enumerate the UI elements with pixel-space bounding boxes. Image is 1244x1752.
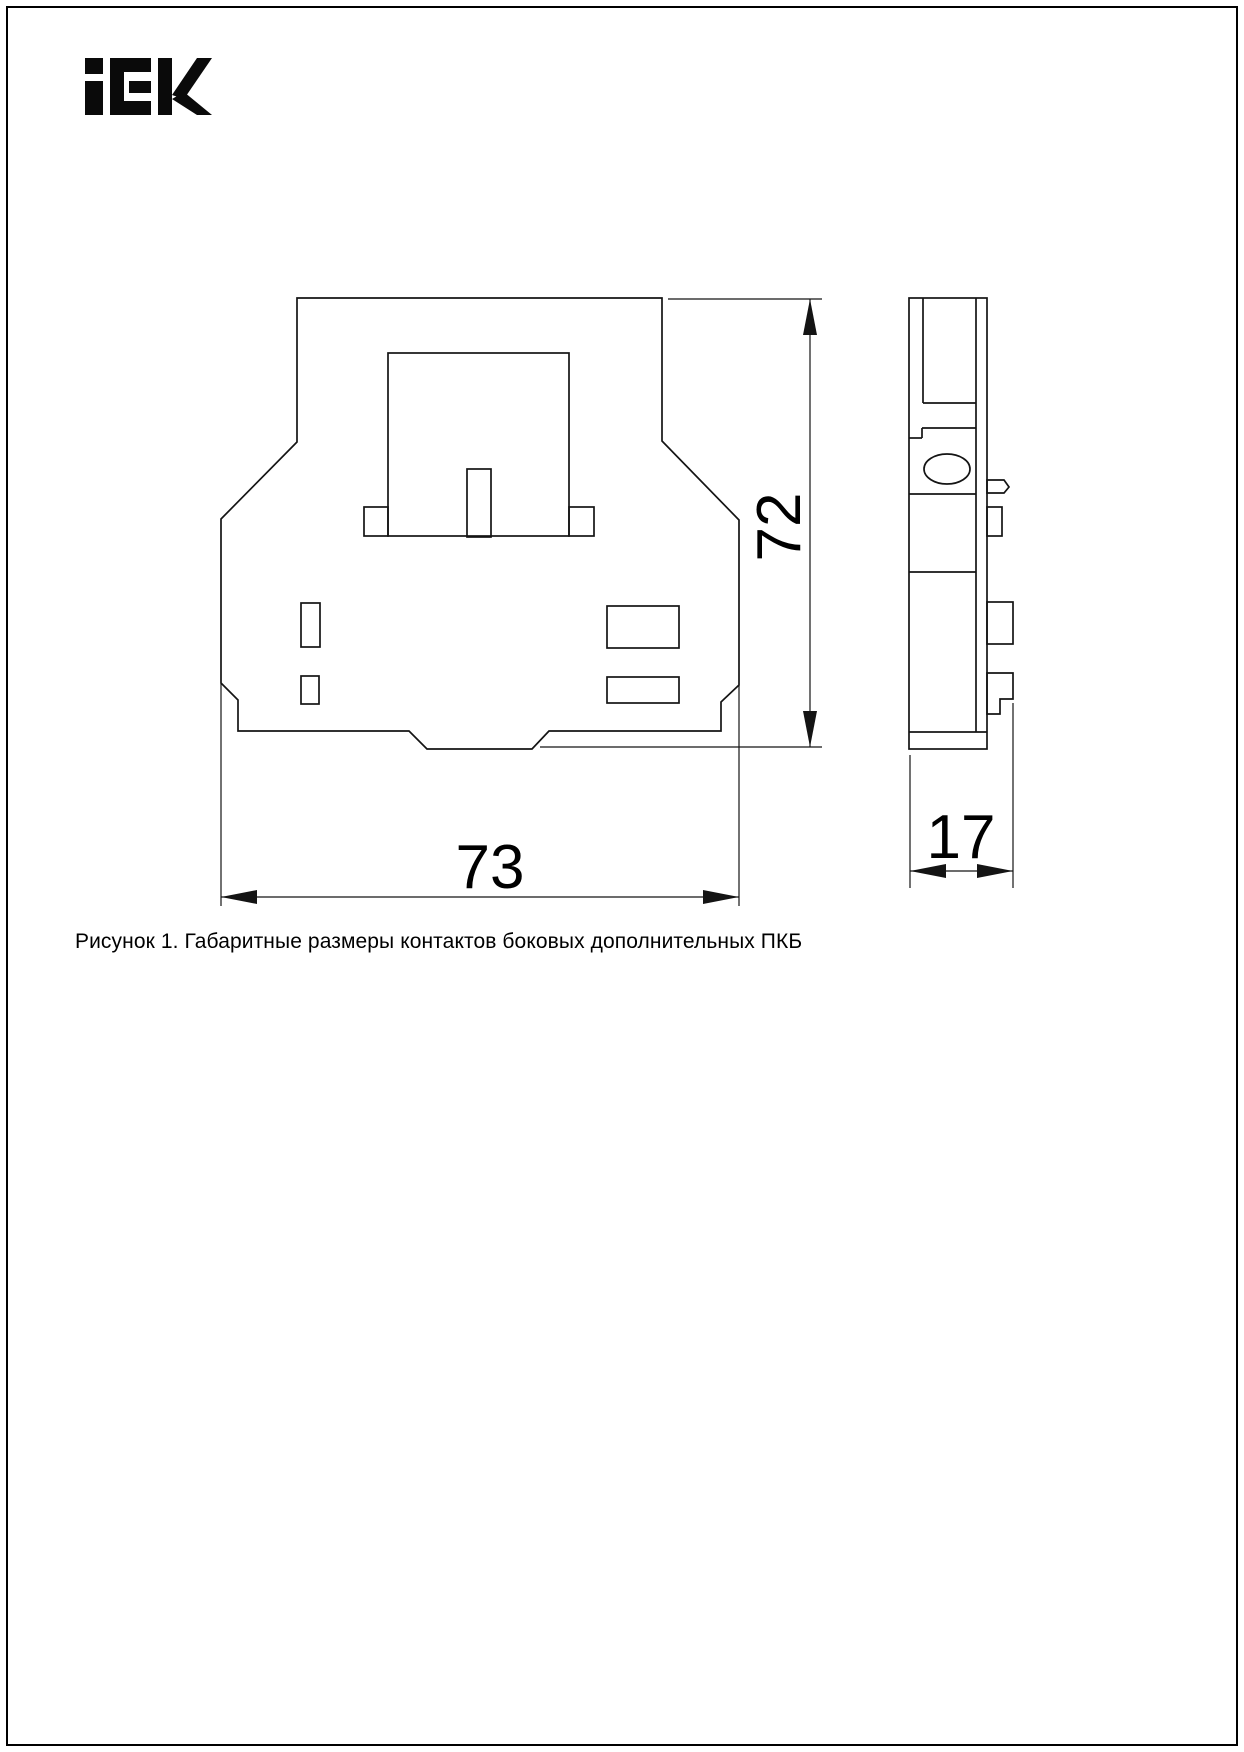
side-clip-big — [987, 602, 1013, 644]
side-screw-hole — [924, 454, 970, 484]
dimension-depth: 17 — [910, 703, 1013, 888]
iek-logo-icon — [85, 58, 212, 115]
front-center-block — [388, 353, 569, 536]
side-clip-small — [987, 507, 1002, 536]
front-right-tab — [569, 507, 594, 536]
technical-drawing: 73 72 17 — [0, 0, 1244, 1752]
side-view — [909, 298, 1013, 749]
front-slot-left-small — [301, 676, 319, 704]
arrowhead-bottom — [803, 711, 817, 747]
dimension-height: 72 — [540, 299, 822, 747]
datasheet-page: 73 72 17 Рисунок 1. Габаритные размеры к… — [0, 0, 1244, 1752]
front-slot-left-tall — [301, 603, 320, 647]
arrowhead-top — [803, 299, 817, 335]
front-view — [221, 298, 739, 749]
arrowhead-right — [703, 890, 739, 904]
front-view-outline — [221, 298, 739, 749]
dimension-width: 73 — [221, 683, 739, 906]
side-clip-step — [987, 673, 1013, 714]
dimension-width-label: 73 — [456, 833, 525, 902]
dimension-depth-label: 17 — [927, 803, 996, 872]
front-center-pin — [467, 469, 491, 537]
front-left-tab — [364, 507, 388, 536]
arrowhead-left — [221, 890, 257, 904]
side-latch-pointed — [987, 480, 1009, 493]
front-slot-right-small — [607, 677, 679, 703]
front-slot-right-big — [607, 606, 679, 648]
dimension-height-label: 72 — [745, 493, 814, 562]
figure-caption: Рисунок 1. Габаритные размеры контактов … — [75, 930, 802, 954]
